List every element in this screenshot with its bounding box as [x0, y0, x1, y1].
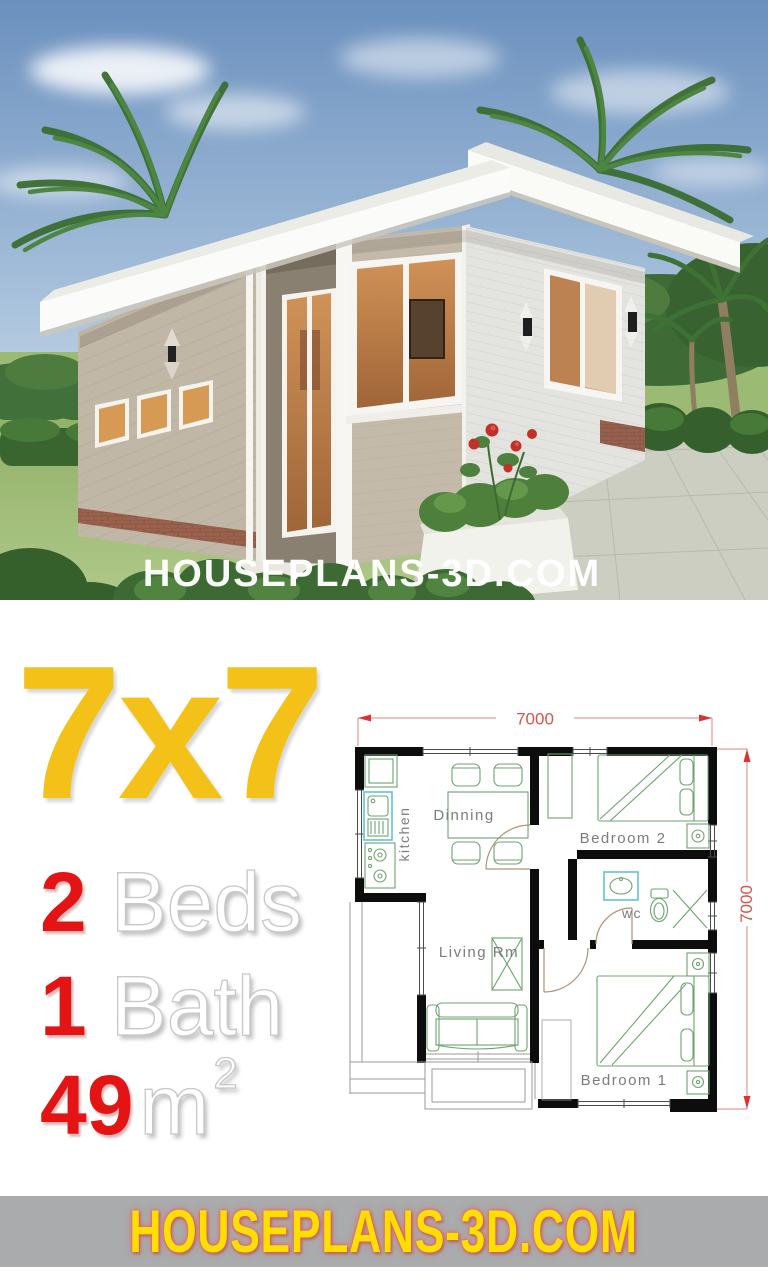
stat-area: 49m2: [40, 1052, 238, 1147]
sofa: [427, 1003, 527, 1051]
plan-size-text: 7x7: [16, 638, 321, 828]
hero-watermark-text: HOUSEPLANS-3D.COM: [143, 553, 601, 595]
area-superscript: 2: [213, 1049, 237, 1098]
bath-label: Bath: [111, 959, 284, 1053]
footer-site-text: HOUSEPLANS-3D.COM: [130, 1196, 638, 1267]
area-unit: m: [139, 1058, 209, 1152]
hero-illustration: HOUSEPLANS-3D.COM: [0, 0, 768, 600]
main-window: [346, 252, 466, 424]
bath-count: 1: [40, 959, 87, 1053]
kitchen-sink-icon: [368, 796, 388, 836]
stat-bath: 1Bath: [40, 964, 284, 1048]
beds-label: Beds: [111, 855, 302, 949]
label-wc: wc: [621, 905, 642, 921]
label-kitchen: kitchen: [396, 807, 412, 862]
porch-door: [282, 288, 336, 538]
stove-icon: [365, 843, 395, 888]
beds-count: 2: [40, 855, 87, 949]
dimension-top-value: 7000: [516, 710, 554, 729]
label-living: Living Rm: [439, 944, 519, 961]
label-bedroom1: Bedroom 1: [581, 1072, 668, 1089]
fridge-icon: [365, 755, 397, 787]
dimension-right: [717, 749, 751, 1109]
footer-bar: HOUSEPLANS-3D.COM: [0, 1196, 768, 1267]
floorplan: 7000 7000: [340, 692, 768, 1133]
area-value: 49: [40, 1058, 133, 1152]
porch-column: [246, 258, 253, 560]
floorplan-drawing: 7000 7000: [340, 692, 768, 1128]
right-window: [544, 268, 622, 402]
walls: [355, 747, 717, 1112]
dimension-right-value: 7000: [737, 885, 756, 923]
hero-photo: HOUSEPLANS-3D.COM: [0, 0, 768, 600]
stat-beds: 2Beds: [40, 860, 302, 944]
label-bedroom2: Bedroom 2: [580, 830, 667, 847]
label-dinning: Dinning: [433, 807, 494, 824]
